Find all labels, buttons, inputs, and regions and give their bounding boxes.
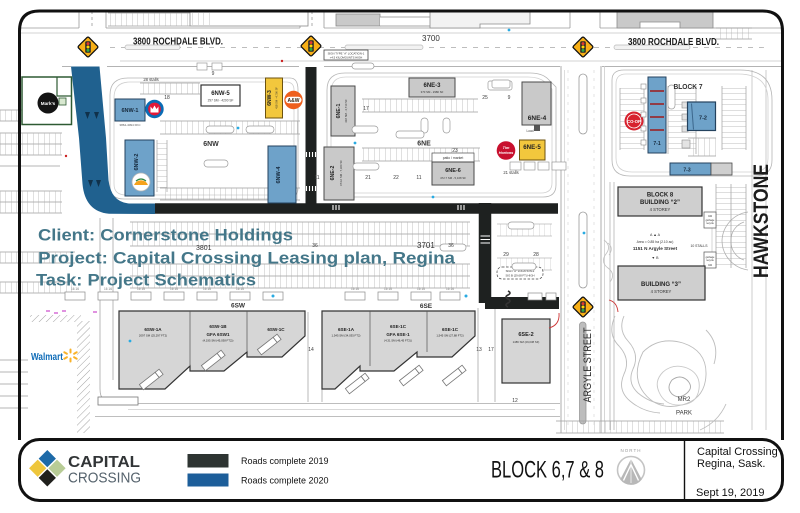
svg-text:6NW: 6NW: [203, 141, 219, 148]
svg-text:Sept 19, 2019: Sept 19, 2019: [696, 487, 765, 499]
svg-text:CROSSING: CROSSING: [68, 470, 141, 487]
svg-text:6SW-1C: 6SW-1C: [267, 327, 285, 332]
svg-text:3800 ROCHDALE BLVD.: 3800 ROCHDALE BLVD.: [133, 36, 223, 48]
svg-text:3864-4094 FKC: 3864-4094 FKC: [119, 123, 141, 127]
svg-text:6NE: 6NE: [417, 141, 431, 148]
svg-text:13: 13: [476, 347, 482, 353]
svg-text:6SE-1C: 6SE-1C: [390, 324, 407, 329]
svg-text:6SE: 6SE: [420, 303, 433, 310]
svg-text:HAWKSTONE: HAWKSTONE: [750, 164, 773, 278]
svg-text:21: 21: [365, 175, 371, 181]
svg-text:Load: Load: [526, 129, 533, 133]
svg-text:28: 28: [533, 252, 539, 258]
svg-text:3700: 3700: [422, 34, 440, 43]
svg-text:2097 SM (25,297 FT2): 2097 SM (25,297 FT2): [139, 334, 167, 338]
svg-text:6NE-5: 6NE-5: [523, 144, 541, 151]
svg-text:17: 17: [363, 106, 369, 112]
svg-text:674.6 SM - 7,360 SF: 674.6 SM - 7,360 SF: [339, 160, 343, 186]
svg-text:16 16: 16 16: [351, 287, 359, 291]
svg-text:4 STOREY: 4 STOREY: [650, 207, 671, 212]
svg-text:CAPITAL: CAPITAL: [68, 454, 140, 471]
svg-text:Client: Cornerstone Holdings: Client: Cornerstone Holdings: [38, 227, 293, 245]
svg-text:9: 9: [212, 71, 215, 77]
svg-text:Capital Crossing: Capital Crossing: [697, 446, 778, 458]
svg-text:472.7 SM - 5,108 SF: 472.7 SM - 5,108 SF: [440, 176, 466, 180]
svg-text:16 16: 16 16: [384, 287, 392, 291]
svg-text:GFA 6SW1: GFA 6SW1: [206, 332, 230, 337]
svg-text:6NW-5: 6NW-5: [211, 91, 230, 97]
svg-text:1,545 SM (34,035 FT2): 1,545 SM (34,035 FT2): [332, 334, 361, 338]
svg-text:25: 25: [482, 95, 488, 101]
svg-text:6SE-1A: 6SE-1A: [338, 327, 355, 332]
svg-text:36: 36: [448, 243, 454, 249]
svg-text:6SE-1C: 6SE-1C: [442, 327, 459, 332]
svg-text:6NE-2: 6NE-2: [330, 166, 336, 181]
svg-text:36: 36: [312, 243, 318, 249]
svg-text:recycle: recycle: [706, 222, 714, 225]
svg-text:7-2: 7-2: [699, 116, 707, 122]
svg-text:A&W: A&W: [288, 98, 300, 104]
svg-text:4 STOREY: 4 STOREY: [651, 289, 672, 294]
svg-text:21 stalls: 21 stalls: [503, 170, 518, 175]
svg-text:28 stalls: 28 stalls: [143, 77, 158, 82]
svg-text:Mark’s: Mark’s: [41, 101, 56, 106]
svg-text:BUILDING “3”: BUILDING “3”: [641, 282, 681, 288]
svg-text:7-1: 7-1: [653, 141, 660, 147]
svg-text:patio / market: patio / market: [443, 156, 464, 160]
svg-text:GFA 6SE-1: GFA 6SE-1: [386, 332, 410, 337]
svg-text:Area = 0.85 ha (2.10 ac): Area = 0.85 ha (2.10 ac): [637, 240, 674, 244]
svg-text:recycle: recycle: [706, 259, 714, 262]
svg-text:6NW-1: 6NW-1: [121, 108, 138, 114]
svg-text:6NW-4: 6NW-4: [276, 166, 282, 184]
svg-text:1151 N Argyle Street: 1151 N Argyle Street: [633, 246, 678, 251]
svg-text:(4,31 SM (46,45 FT2)): (4,31 SM (46,45 FT2)): [384, 339, 412, 343]
svg-text:17: 17: [488, 347, 494, 353]
svg-text:A ▲ A: A ▲ A: [650, 233, 661, 237]
svg-text:14: 14: [308, 347, 314, 353]
svg-text:7-3: 7-3: [683, 168, 690, 174]
svg-text:Hortons: Hortons: [499, 151, 514, 155]
svg-text:297 SM - 4200 SF: 297 SM - 4200 SF: [208, 99, 234, 103]
svg-text:6NE-3: 6NE-3: [423, 83, 441, 89]
svg-text:CO-OP: CO-OP: [627, 119, 641, 124]
svg-text:16 16: 16 16: [446, 287, 454, 291]
svg-text:6SW: 6SW: [231, 303, 246, 310]
svg-text:6NE-4: 6NE-4: [528, 115, 547, 122]
svg-text:Task: Project Schematics: Task: Project Schematics: [36, 272, 256, 290]
svg-text:BUILDING “2”: BUILDING “2”: [640, 200, 680, 206]
svg-text:SIG B (29.68 FT) HIGH: SIG B (29.68 FT) HIGH: [505, 274, 534, 278]
svg-text:29: 29: [503, 252, 509, 258]
svg-text:MR2: MR2: [678, 397, 691, 403]
svg-text:Regina, Sask.: Regina, Sask.: [697, 458, 765, 470]
svg-text:11: 11: [314, 175, 319, 181]
svg-text:16 16: 16 16: [417, 287, 425, 291]
svg-text:18: 18: [164, 95, 170, 101]
svg-text:3800 ROCHDALE BLVD.: 3800 ROCHDALE BLVD.: [628, 36, 719, 48]
svg-text:BLOCK 6,7 & 8: BLOCK 6,7 & 8: [491, 457, 604, 484]
svg-text:BLOCK 7: BLOCK 7: [674, 84, 703, 91]
svg-text:6SW-1B: 6SW-1B: [209, 324, 227, 329]
svg-text:418 SM - 4,700 SF: 418 SM - 4,700 SF: [275, 87, 279, 109]
svg-text:6SW-1A: 6SW-1A: [144, 327, 162, 332]
svg-text:(4,195 SM (45,038 FT2)): (4,195 SM (45,038 FT2)): [203, 339, 234, 343]
svg-text:Tim: Tim: [503, 146, 510, 150]
svg-text:Roads complete 2020: Roads complete 2020: [241, 476, 329, 486]
svg-text:6NE-6: 6NE-6: [445, 168, 461, 174]
svg-text:NORTH: NORTH: [621, 448, 642, 453]
svg-text:9: 9: [508, 95, 511, 101]
svg-text:PARK: PARK: [676, 411, 692, 417]
svg-text:BLOCK 8: BLOCK 8: [647, 193, 674, 199]
svg-text:1486 SM (29,038 SF): 1486 SM (29,038 SF): [513, 340, 540, 344]
svg-text:418 SM - 4,710 SF: 418 SM - 4,710 SF: [344, 99, 348, 123]
svg-text:Project: Capital Crossing Leas: Project: Capital Crossing Leasing plan, …: [38, 250, 456, 268]
svg-text:11: 11: [416, 175, 421, 181]
svg-text:Roads complete 2019: Roads complete 2019: [241, 456, 329, 466]
svg-text:Walmart: Walmart: [31, 351, 63, 363]
svg-text:+4.5 KILOMOUNTS HIGH: +4.5 KILOMOUNTS HIGH: [330, 56, 363, 60]
svg-text:12: 12: [512, 398, 518, 404]
svg-text:1,545 SM (27,88 FT2): 1,545 SM (27,88 FT2): [436, 334, 463, 338]
svg-text:6SE-2: 6SE-2: [518, 332, 533, 338]
svg-text:6NE-1: 6NE-1: [336, 104, 342, 119]
svg-text:▼ B: ▼ B: [652, 256, 660, 260]
svg-text:22: 22: [393, 175, 399, 181]
svg-text:6NW-3: 6NW-3: [267, 90, 273, 106]
svg-text:ARGYLE STREET: ARGYLE STREET: [582, 327, 594, 402]
svg-text:370 SM - 2980 SF: 370 SM - 2980 SF: [421, 90, 444, 94]
svg-text:6NW-2: 6NW-2: [134, 153, 140, 170]
svg-text:10 STALLS: 10 STALLS: [690, 244, 708, 248]
svg-text:23: 23: [452, 148, 458, 154]
